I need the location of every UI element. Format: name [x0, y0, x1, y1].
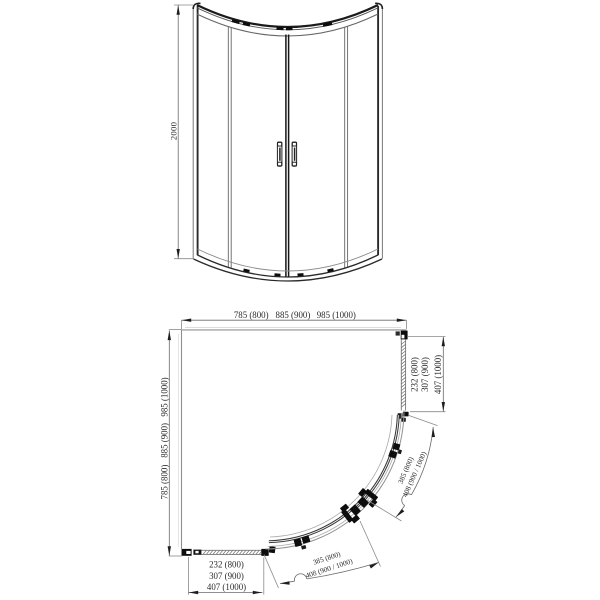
svg-text:985 (1000): 985 (1000) — [317, 310, 356, 320]
svg-text:407 (1000): 407 (1000) — [433, 355, 443, 394]
svg-text:885 (900): 885 (900) — [276, 310, 311, 320]
svg-text:985 (1000): 985 (1000) — [159, 377, 169, 416]
svg-text:307 (900): 307 (900) — [420, 357, 430, 392]
svg-text:407 (1000): 407 (1000) — [207, 582, 246, 592]
svg-text:307 (900): 307 (900) — [209, 571, 244, 581]
svg-text:885 (900): 885 (900) — [159, 423, 169, 458]
svg-text:785 (800): 785 (800) — [234, 310, 269, 320]
svg-text:785 (800): 785 (800) — [159, 465, 169, 500]
svg-text:2000: 2000 — [168, 121, 178, 140]
svg-text:232 (800): 232 (800) — [209, 560, 244, 570]
svg-text:232 (800): 232 (800) — [409, 357, 419, 392]
